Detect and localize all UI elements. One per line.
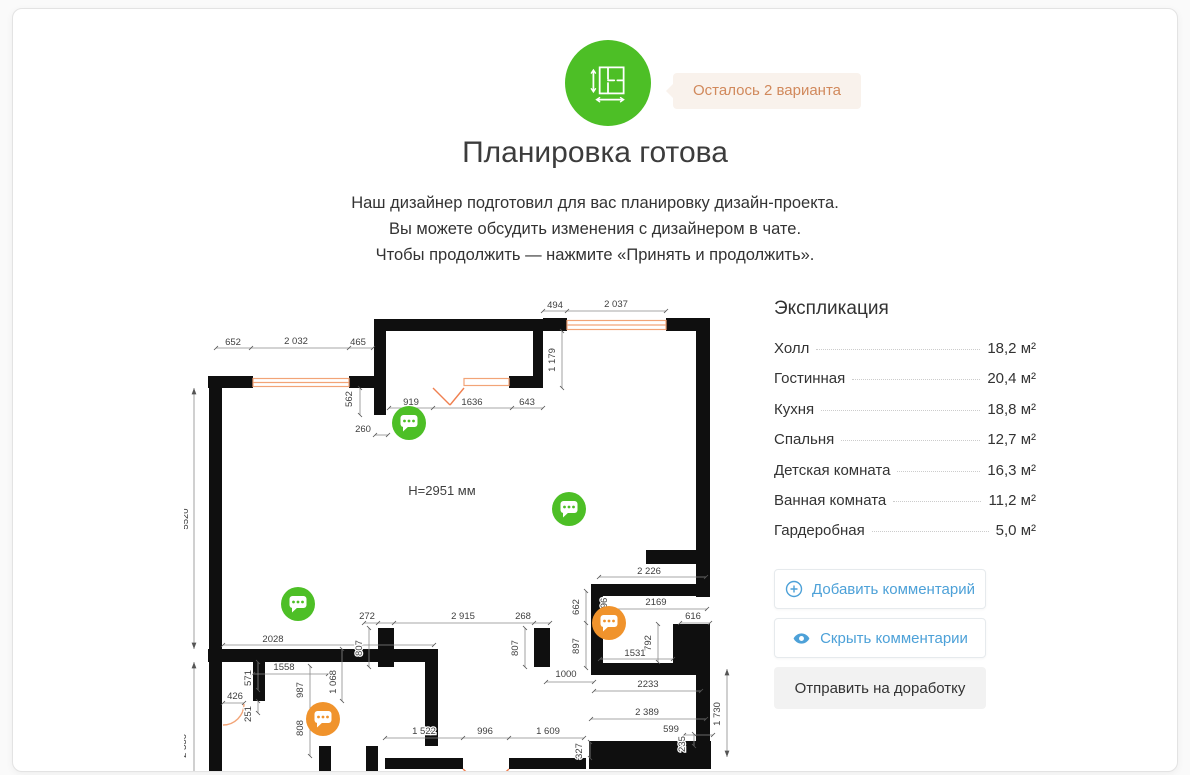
comment-marker-green-1[interactable]: [392, 406, 426, 440]
dim-562: 562: [344, 391, 355, 407]
dim-571: 571: [243, 670, 254, 686]
hide-comments-button[interactable]: Скрыть комментарии: [774, 618, 986, 658]
dim-5520: 5520: [184, 508, 191, 529]
explication-panel: Экспликация Холл 18,2 м² Гостинная 20,4 …: [774, 298, 1036, 553]
room-label: Гостинная: [774, 370, 845, 387]
dim-2226: 2 226: [637, 566, 661, 577]
eye-icon: [792, 629, 811, 648]
dim-268: 268: [515, 611, 531, 622]
dim-652: 652: [225, 337, 241, 348]
dim-1068: 1 068: [328, 670, 339, 694]
variants-badge-label: Осталось 2 варианта: [693, 82, 841, 99]
explication-row-hall: Холл 18,2 м²: [774, 340, 1036, 370]
dim-807-left: 807: [354, 640, 365, 656]
dotted-leader: [872, 531, 989, 532]
dim-2336: 2 336: [184, 734, 189, 758]
floor-plan: 652 2 032 465 494 2 037 919 1636 643 260…: [184, 286, 764, 771]
dim-272: 272: [359, 611, 375, 622]
dim-1609: 1 609: [536, 726, 560, 737]
dim-897: 897: [571, 638, 582, 654]
action-buttons: Добавить комментарий Скрыть комментарии …: [774, 569, 986, 718]
dim-616: 616: [685, 611, 701, 622]
subtitle-line-2: Вы можете обсудить изменения с дизайнеро…: [13, 216, 1177, 242]
room-label: Детская комната: [774, 462, 890, 479]
subtitle-line-1: Наш дизайнер подготовил для вас планиров…: [13, 190, 1177, 216]
dim-465: 465: [350, 337, 366, 348]
dim-1636: 1636: [461, 397, 482, 408]
dim-1730: 1 730: [712, 702, 723, 726]
room-area: 18,8 м²: [987, 401, 1036, 418]
dim-2389: 2 389: [635, 707, 659, 718]
explication-row-living: Гостинная 20,4 м²: [774, 370, 1036, 400]
room-area: 16,3 м²: [987, 462, 1036, 479]
dim-1531: 1531: [624, 648, 645, 659]
dim-987: 987: [295, 682, 306, 698]
dotted-leader: [897, 471, 980, 472]
room-area: 11,2 м²: [988, 492, 1036, 509]
dim-2169: 2169: [645, 597, 666, 608]
dim-808: 808: [295, 720, 306, 736]
subtitle: Наш дизайнер подготовил для вас планиров…: [13, 190, 1177, 268]
dim-2037: 2 037: [604, 299, 628, 310]
dim-251: 251: [243, 706, 254, 722]
ceiling-height-label: H=2951 мм: [408, 483, 475, 498]
variants-badge: Осталось 2 варианта: [673, 73, 861, 109]
comment-marker-orange-1[interactable]: [592, 606, 626, 640]
dim-2032: 2 032: [284, 336, 308, 347]
explication-row-bedroom: Спальня 12,7 м²: [774, 431, 1036, 461]
dim-1522: 1 522: [412, 726, 436, 737]
hide-comments-label: Скрыть комментарии: [820, 630, 968, 647]
room-label: Холл: [774, 340, 809, 357]
add-comment-label: Добавить комментарий: [812, 581, 975, 598]
dotted-leader: [852, 379, 980, 380]
dim-235: 235: [677, 736, 688, 752]
dim-662: 662: [571, 599, 582, 615]
dim-260: 260: [355, 424, 371, 435]
dim-1558: 1558: [273, 662, 294, 673]
plus-circle-icon: [785, 580, 803, 598]
room-label: Кухня: [774, 401, 814, 418]
add-comment-button[interactable]: Добавить комментарий: [774, 569, 986, 609]
main-card: Осталось 2 варианта Планировка готова На…: [12, 8, 1178, 772]
explication-row-kids: Детская комната 16,3 м²: [774, 462, 1036, 492]
comment-marker-green-3[interactable]: [281, 587, 315, 621]
explication-row-bathroom: Ванная комната 11,2 м²: [774, 492, 1036, 522]
dotted-leader: [893, 501, 981, 502]
dim-599: 599: [663, 724, 679, 735]
room-label: Ванная комната: [774, 492, 886, 509]
dim-1000: 1000: [555, 669, 576, 680]
subtitle-line-3: Чтобы продолжить — нажмите «Принять и пр…: [13, 242, 1177, 268]
explication-row-kitchen: Кухня 18,8 м²: [774, 401, 1036, 431]
dotted-leader: [816, 349, 980, 350]
explication-row-wardrobe: Гардеробная 5,0 м²: [774, 522, 1036, 552]
dim-643: 643: [519, 397, 535, 408]
dim-2915: 2 915: [451, 611, 475, 622]
explication-title: Экспликация: [774, 298, 1036, 320]
room-area: 20,4 м²: [987, 370, 1036, 387]
comment-marker-orange-2[interactable]: [306, 702, 340, 736]
send-revision-button[interactable]: Отправить на доработку: [774, 667, 986, 709]
room-area: 18,2 м²: [987, 340, 1036, 357]
dim-807-right: 807: [510, 640, 521, 656]
dim-1179: 1 179: [547, 348, 558, 372]
room-area: 12,7 м²: [987, 431, 1036, 448]
plan-doors: [223, 388, 509, 771]
dim-426: 426: [227, 691, 243, 702]
page-title: Планировка готова: [13, 136, 1177, 170]
room-label: Гардеробная: [774, 522, 865, 539]
comment-marker-green-2[interactable]: [552, 492, 586, 526]
dotted-leader: [821, 410, 980, 411]
dim-2233: 2233: [637, 679, 658, 690]
room-label: Спальня: [774, 431, 834, 448]
dim-327: 327: [574, 743, 585, 759]
room-area: 5,0 м²: [996, 522, 1036, 539]
send-revision-label: Отправить на доработку: [795, 680, 966, 697]
dotted-leader: [841, 440, 980, 441]
dim-996: 996: [477, 726, 493, 737]
dim-2028: 2028: [262, 634, 283, 645]
dim-494: 494: [547, 300, 563, 311]
floorplan-icon: [565, 40, 651, 126]
badge-arrow: [666, 84, 673, 98]
